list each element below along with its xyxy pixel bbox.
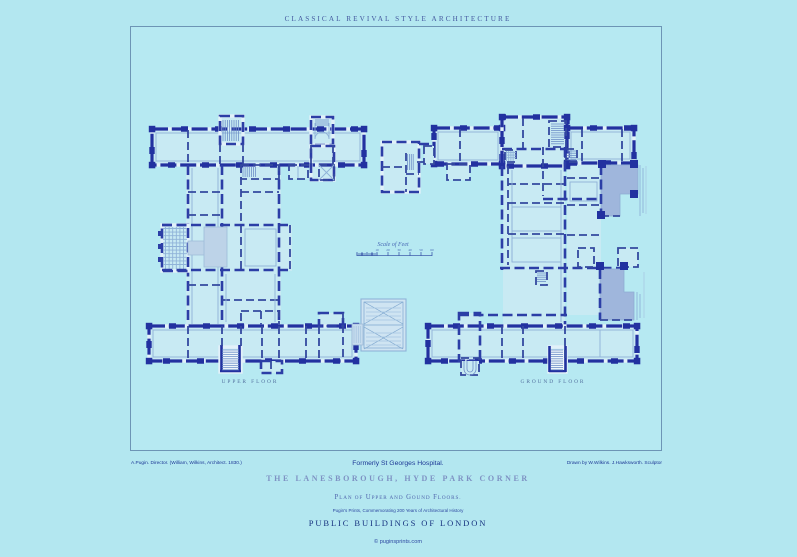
svg-text:CLASSICAL REVIVAL STYLE ARCHIT: CLASSICAL REVIVAL STYLE ARCHITECTURE	[285, 15, 512, 23]
svg-text:UPPER FLOOR: UPPER FLOOR	[222, 379, 279, 385]
svg-text:PUBLIC BUILDINGS OF LONDON: PUBLIC BUILDINGS OF LONDON	[309, 518, 488, 528]
svg-text:THE LANESBOROUGH, HYDE PARK CO: THE LANESBOROUGH, HYDE PARK CORNER	[266, 474, 530, 483]
svg-text:60: 60	[430, 248, 434, 252]
svg-text:40: 40	[408, 248, 412, 252]
svg-text:Formerly St Georges Hospital.: Formerly St Georges Hospital.	[352, 460, 444, 467]
svg-text:20: 20	[386, 248, 390, 252]
svg-text:GROUND FLOOR: GROUND FLOOR	[521, 379, 586, 385]
svg-text:30: 30	[397, 248, 401, 252]
svg-text:10: 10	[375, 248, 379, 252]
svg-text:Drawn by W.Wilkins. J.Hawkswo: Drawn by W.Wilkins. J.Hawksworth. Sculpt…	[567, 460, 663, 466]
svg-text:Scale of Feet: Scale of Feet	[377, 241, 409, 248]
svg-text:Pugin's Prints, Commemorating: Pugin's Prints, Commemorating 200 Years …	[333, 508, 464, 513]
svg-text:© puginsprints.com: © puginsprints.com	[374, 538, 422, 545]
svg-text:50: 50	[419, 248, 423, 252]
svg-text:PLAN OF UPPER AND GOUND FLOORS: PLAN OF UPPER AND GOUND FLOORS.	[335, 494, 462, 501]
svg-text:A.Pugin. Director. (William, W: A.Pugin. Director. (William, Wilkins, Ar…	[131, 460, 242, 466]
